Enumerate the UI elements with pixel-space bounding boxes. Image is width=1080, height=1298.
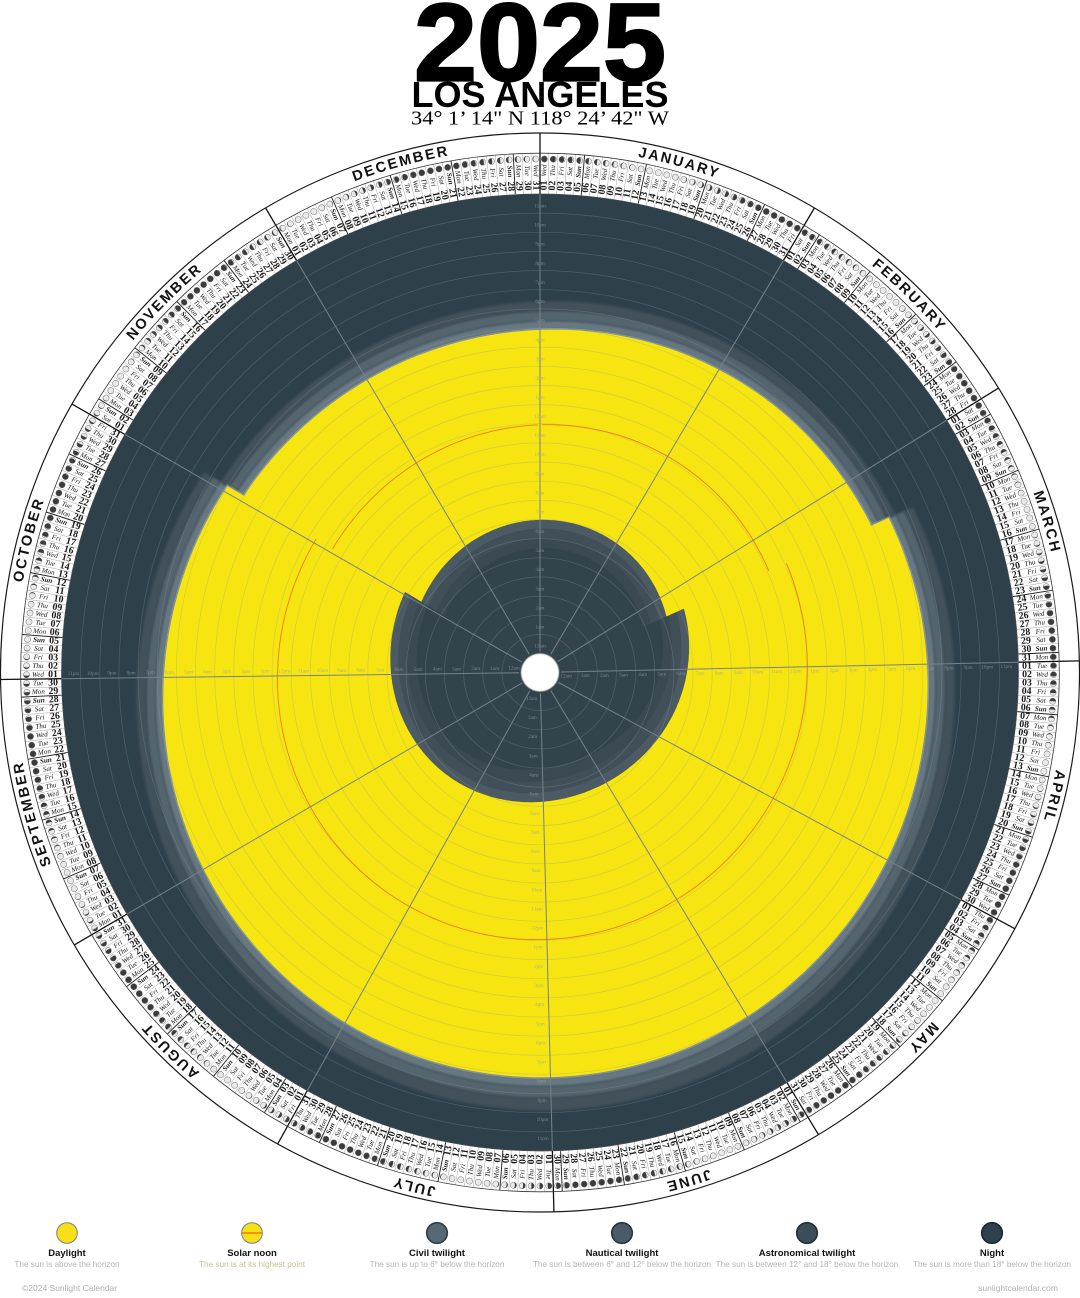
svg-text:7pm: 7pm — [535, 280, 544, 286]
svg-text:3pm: 3pm — [535, 356, 544, 362]
svg-text:12am: 12am — [560, 674, 572, 680]
svg-text:9pm: 9pm — [537, 1098, 546, 1104]
svg-text:9am: 9am — [532, 868, 541, 874]
svg-text:6pm: 6pm — [535, 299, 544, 305]
svg-text:Fri: Fri — [488, 167, 497, 178]
svg-text:5am: 5am — [657, 672, 666, 678]
svg-text:The sun is above the horizon: The sun is above the horizon — [14, 1260, 120, 1269]
svg-text:The sun is at its highest poin: The sun is at its highest point — [199, 1260, 306, 1269]
svg-text:Sat: Sat — [570, 1168, 579, 1179]
svg-text:11pm: 11pm — [537, 1136, 549, 1142]
svg-text:7am: 7am — [531, 830, 540, 836]
svg-text:1am: 1am — [528, 715, 537, 721]
svg-text:9pm: 9pm — [535, 242, 544, 248]
svg-text:Mon: Mon — [514, 163, 523, 178]
svg-text:Fri: Fri — [38, 592, 49, 601]
svg-text:11am: 11am — [771, 669, 782, 675]
svg-text:Fri: Fri — [579, 1167, 588, 1178]
svg-text:11pm: 11pm — [68, 671, 80, 677]
svg-text:5am: 5am — [414, 667, 423, 673]
svg-text:Tue: Tue — [484, 1166, 493, 1177]
svg-text:Sun: Sun — [1035, 644, 1047, 653]
svg-text:Sat: Sat — [34, 644, 44, 652]
svg-text:The sun is more than 18° below: The sun is more than 18° below the horiz… — [913, 1260, 1071, 1269]
svg-text:Tue: Tue — [35, 618, 46, 627]
svg-text:7pm: 7pm — [925, 666, 934, 672]
svg-text:Wed: Wed — [35, 610, 48, 619]
svg-text:31: 31 — [530, 181, 541, 191]
svg-text:6pm: 6pm — [165, 670, 174, 676]
svg-text:7pm: 7pm — [536, 1060, 545, 1066]
svg-text:Wed: Wed — [471, 168, 481, 181]
svg-text:Tue: Tue — [1037, 662, 1047, 670]
svg-text:©2024 Sunlight Calendar: ©2024 Sunlight Calendar — [22, 1283, 117, 1293]
svg-text:Astronomical twilight: Astronomical twilight — [759, 1248, 856, 1259]
svg-text:4pm: 4pm — [868, 667, 877, 673]
svg-text:34° 1’ 14" N 118° 24’ 42" W: 34° 1’ 14" N 118° 24’ 42" W — [411, 108, 669, 130]
svg-text:Wed: Wed — [536, 1168, 544, 1180]
svg-text:2pm: 2pm — [535, 376, 544, 382]
svg-text:1pm: 1pm — [535, 395, 544, 401]
svg-text:2pm: 2pm — [829, 668, 838, 674]
svg-text:Fri: Fri — [33, 653, 43, 661]
svg-text:Mon: Mon — [31, 688, 46, 697]
svg-text:10am: 10am — [752, 669, 764, 675]
svg-text:4am: 4am — [529, 772, 538, 778]
svg-text:Sat: Sat — [34, 705, 45, 714]
svg-text:Fri: Fri — [34, 713, 45, 722]
svg-text:11am: 11am — [298, 668, 309, 674]
svg-text:12pm: 12pm — [790, 669, 802, 675]
svg-text:Sat: Sat — [449, 1161, 459, 1172]
svg-text:11am: 11am — [534, 433, 545, 439]
svg-text:8am: 8am — [715, 670, 724, 676]
svg-text:Sun: Sun — [1035, 705, 1047, 714]
svg-text:7am: 7am — [536, 510, 545, 516]
svg-text:Thu: Thu — [479, 168, 488, 180]
svg-text:7am: 7am — [375, 667, 384, 673]
svg-text:6am: 6am — [395, 667, 404, 673]
svg-text:1am: 1am — [536, 625, 545, 631]
svg-text:The sun is up to 6° below the: The sun is up to 6° below the horizon — [370, 1260, 505, 1269]
svg-text:Fri: Fri — [458, 1163, 467, 1174]
svg-text:2am: 2am — [528, 734, 537, 740]
svg-text:3am: 3am — [529, 753, 538, 759]
svg-text:8am: 8am — [356, 667, 365, 673]
svg-text:5am: 5am — [530, 792, 539, 798]
svg-text:1pm: 1pm — [260, 669, 269, 675]
svg-text:4pm: 4pm — [535, 1002, 544, 1008]
svg-text:Solar noon: Solar noon — [227, 1248, 277, 1259]
svg-text:9am: 9am — [734, 670, 743, 676]
svg-text:3pm: 3pm — [534, 983, 543, 989]
svg-text:Wed: Wed — [532, 164, 540, 176]
svg-text:Thu: Thu — [1034, 618, 1046, 627]
svg-text:The sun is between 12° and 18°: The sun is between 12° and 18° below the… — [716, 1260, 899, 1269]
svg-text:Nautical twilight: Nautical twilight — [586, 1248, 660, 1259]
svg-text:4am: 4am — [638, 672, 647, 678]
svg-text:6pm: 6pm — [536, 1040, 545, 1046]
svg-text:8pm: 8pm — [126, 670, 135, 676]
svg-text:Wed: Wed — [540, 164, 548, 176]
svg-text:4pm: 4pm — [203, 669, 212, 675]
svg-text:Thu: Thu — [587, 1166, 596, 1178]
svg-text:11am: 11am — [531, 906, 542, 912]
svg-text:Fri: Fri — [557, 166, 565, 176]
svg-text:Wed: Wed — [35, 730, 48, 739]
svg-text:7am: 7am — [696, 671, 705, 677]
svg-text:Tue: Tue — [462, 170, 471, 181]
svg-text:10am: 10am — [317, 668, 329, 674]
svg-text:Sat: Sat — [1036, 696, 1047, 705]
svg-text:6am: 6am — [530, 811, 539, 817]
svg-text:Thu: Thu — [32, 662, 44, 670]
svg-text:12am: 12am — [526, 696, 538, 702]
svg-text:The sun is between 6° and 12°: The sun is between 6° and 12° below the … — [533, 1260, 712, 1269]
svg-text:1pm: 1pm — [533, 945, 542, 951]
svg-text:5pm: 5pm — [535, 1021, 544, 1027]
svg-text:Tue: Tue — [37, 739, 48, 748]
svg-text:10pm: 10pm — [534, 222, 546, 228]
svg-text:5pm: 5pm — [535, 318, 544, 324]
svg-text:Fri: Fri — [519, 1170, 527, 1180]
svg-text:4am: 4am — [433, 666, 442, 672]
svg-text:10pm: 10pm — [87, 671, 99, 677]
svg-text:Tue: Tue — [523, 165, 531, 175]
svg-text:Sat: Sat — [1036, 636, 1047, 645]
svg-text:Sun: Sun — [501, 1167, 510, 1179]
svg-text:Tue: Tue — [545, 1169, 553, 1179]
svg-text:2pm: 2pm — [534, 964, 543, 970]
svg-text:Sun: Sun — [505, 165, 514, 177]
svg-text:8pm: 8pm — [535, 261, 544, 267]
svg-text:9pm: 9pm — [107, 671, 116, 677]
svg-text:Sat: Sat — [566, 166, 575, 177]
svg-text:Mon: Mon — [553, 1167, 561, 1182]
svg-text:3am: 3am — [536, 586, 545, 592]
svg-text:5am: 5am — [536, 548, 545, 554]
svg-text:2am: 2am — [600, 673, 609, 679]
svg-text:Civil twilight: Civil twilight — [409, 1248, 466, 1259]
svg-text:Sun: Sun — [562, 1168, 571, 1180]
svg-text:12am: 12am — [534, 644, 546, 650]
svg-text:10pm: 10pm — [981, 665, 993, 671]
svg-text:11pm: 11pm — [1000, 664, 1012, 670]
svg-text:10pm: 10pm — [537, 1117, 549, 1123]
svg-text:8pm: 8pm — [537, 1079, 546, 1085]
svg-text:9am: 9am — [536, 471, 545, 477]
svg-text:7pm: 7pm — [146, 670, 155, 676]
svg-text:Thu: Thu — [35, 722, 47, 731]
svg-text:12pm: 12pm — [278, 668, 290, 674]
svg-text:6pm: 6pm — [906, 666, 915, 672]
svg-text:8am: 8am — [536, 490, 545, 496]
svg-text:1am: 1am — [581, 673, 590, 679]
svg-text:6am: 6am — [676, 671, 685, 677]
svg-text:3am: 3am — [452, 666, 461, 672]
svg-text:Night: Night — [980, 1248, 1005, 1259]
svg-text:Wed: Wed — [475, 1164, 484, 1177]
svg-text:10am: 10am — [534, 452, 546, 458]
svg-text:8pm: 8pm — [944, 665, 953, 671]
svg-text:4am: 4am — [536, 567, 545, 573]
svg-text:Mon: Mon — [32, 627, 47, 636]
svg-text:9am: 9am — [337, 668, 346, 674]
svg-text:Daylight: Daylight — [48, 1248, 86, 1259]
svg-text:Tue: Tue — [33, 679, 43, 687]
svg-text:5pm: 5pm — [887, 667, 896, 673]
svg-text:3pm: 3pm — [222, 669, 231, 675]
svg-text:6am: 6am — [536, 529, 545, 535]
svg-text:Sat: Sat — [497, 167, 506, 178]
svg-text:4pm: 4pm — [535, 337, 544, 343]
svg-text:Thu: Thu — [466, 1163, 476, 1175]
svg-text:5pm: 5pm — [184, 670, 193, 676]
svg-text:2am: 2am — [536, 605, 545, 611]
svg-text:Sun: Sun — [33, 696, 45, 705]
svg-text:12am: 12am — [508, 665, 520, 671]
svg-text:2pm: 2pm — [241, 669, 250, 675]
svg-text:1am: 1am — [490, 666, 499, 672]
svg-text:Thu: Thu — [527, 1168, 535, 1180]
svg-text:9pm: 9pm — [963, 665, 972, 671]
svg-text:12pm: 12pm — [532, 926, 544, 932]
svg-text:Thu: Thu — [549, 165, 557, 177]
svg-text:Sun: Sun — [33, 636, 45, 645]
svg-text:8am: 8am — [531, 849, 540, 855]
svg-text:Mon: Mon — [1034, 653, 1049, 661]
svg-text:Thu: Thu — [36, 601, 48, 610]
svg-text:Wed: Wed — [32, 671, 44, 679]
svg-text:10am: 10am — [531, 887, 543, 893]
svg-text:Mon: Mon — [492, 1165, 501, 1180]
svg-text:Tue: Tue — [1034, 722, 1045, 731]
svg-text:Fri: Fri — [1036, 688, 1046, 696]
svg-text:Fri: Fri — [1034, 627, 1045, 636]
svg-text:3pm: 3pm — [849, 667, 858, 673]
svg-text:Wed: Wed — [1036, 671, 1048, 679]
svg-text:3am: 3am — [619, 672, 628, 678]
svg-text:12pm: 12pm — [534, 414, 546, 420]
svg-text:Thu: Thu — [1036, 679, 1048, 687]
svg-text:Sat: Sat — [40, 584, 51, 594]
svg-text:1pm: 1pm — [810, 668, 819, 674]
svg-text:Sat: Sat — [510, 1168, 519, 1178]
svg-text:2am: 2am — [471, 666, 480, 672]
svg-text:Sun: Sun — [574, 166, 583, 178]
svg-text:11pm: 11pm — [534, 203, 546, 209]
svg-text:sunlightcalendar.com: sunlightcalendar.com — [978, 1283, 1058, 1293]
